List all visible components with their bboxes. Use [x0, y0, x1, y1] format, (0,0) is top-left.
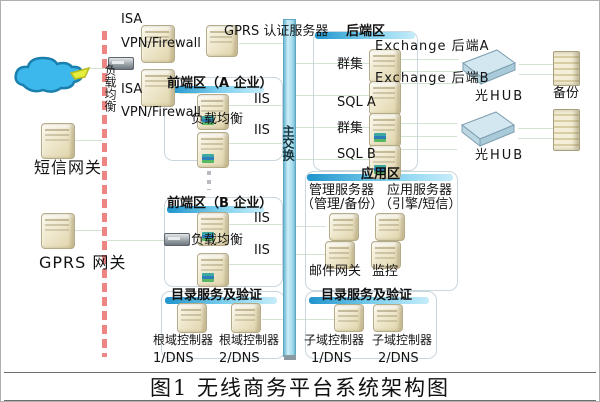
connector-line	[519, 74, 554, 75]
load-balance-vertical-label: 负载均衡	[102, 64, 119, 112]
hub1-label: 光HUB	[475, 90, 524, 104]
sms-gateway-label: 短信网关	[34, 159, 102, 177]
sub-dns2-label: 2/DNS	[378, 352, 419, 366]
root-dns2-label: 2/DNS	[219, 352, 260, 366]
exchange-b-label: Exchange 后端B	[375, 72, 490, 86]
sql-b-label: SQL B	[337, 148, 376, 162]
iis-server-b2-icon	[197, 253, 229, 287]
main-switch-bar	[283, 19, 296, 357]
backup-server1-icon	[553, 51, 580, 86]
frontend-b-lb-label: 负载均衡	[191, 234, 243, 248]
main-switch-label: 主交换	[284, 125, 297, 161]
backup-label: 备份	[553, 87, 579, 101]
sms-gateway-icon	[41, 123, 75, 159]
cluster1-label: 群集	[337, 58, 363, 72]
cluster2-label: 群集	[337, 122, 363, 136]
root-dc1-icon	[177, 303, 207, 333]
connector-line	[75, 140, 103, 141]
vpn-firewall-top-label: VPN/Firewall	[121, 37, 201, 51]
zone-title-application: 应用区	[361, 163, 400, 182]
backup-server2-icon	[553, 109, 580, 151]
gprs-gateway-label: GPRS 网关	[39, 254, 126, 272]
connector-line	[519, 64, 554, 65]
architecture-diagram: 负载均衡 ISA VPN/Firewall ISA VPN/Firewall G…	[0, 0, 600, 402]
load-balancer-device-b-icon	[164, 233, 190, 246]
vpn-firewall-bottom-label: VPN/Firewall	[121, 106, 201, 120]
sub-dc1-icon	[334, 304, 364, 332]
iis-a1-label: IIS	[254, 93, 270, 107]
sub-dns1-label: 1/DNS	[311, 352, 352, 366]
optical-hub2-icon	[456, 109, 520, 149]
figure-caption-box: 图1 无线商务平台系统架构图	[4, 372, 596, 401]
zone-title-frontend-a: 前端区（A 企业）	[167, 72, 273, 91]
zone-title-directory-sub: 目录服务及验证	[321, 284, 412, 303]
iis-a2-label: IIS	[254, 124, 270, 138]
exchange-a-label: Exchange 后端A	[375, 40, 490, 54]
gprs-gateway-icon	[41, 213, 75, 249]
connector-line	[107, 240, 165, 241]
connector-line	[239, 43, 284, 44]
iis-b1-label: IIS	[254, 212, 270, 226]
internet-cloud-icon	[9, 49, 93, 99]
mgmt-server-icon	[329, 213, 359, 241]
gprs-auth-server-label: GPRS 认证服务器	[224, 25, 328, 39]
zone-title-backend: 后端区	[346, 20, 385, 39]
iis-b2-label: IIS	[254, 244, 270, 258]
root-dns1-label: 1/DNS	[153, 352, 194, 366]
main-switch-bar-cap	[284, 355, 296, 360]
isa-top-label: ISA	[121, 13, 142, 27]
zone-title-frontend-b: 前端区（B 企业）	[167, 192, 272, 211]
connector-line	[518, 138, 554, 139]
connector-line	[518, 128, 554, 129]
root-dc1-label: 根域控制器	[153, 334, 213, 347]
frontend-a-lb-label: 负载均衡	[191, 113, 243, 127]
sql-a-server-icon	[369, 113, 401, 147]
sub-dc1-label: 子域控制器	[304, 334, 364, 347]
app-sub-label: （引擎/短信）	[379, 198, 461, 212]
zone-title-directory-root: 目录服务及验证	[171, 284, 262, 303]
root-dc2-label: 根域控制器	[219, 334, 279, 347]
monitor-label: 监控	[372, 265, 398, 279]
figure-caption: 图1 无线商务平台系统架构图	[150, 372, 450, 402]
connector-line	[75, 230, 103, 231]
iis-server-a2-icon	[197, 132, 229, 168]
hub2-label: 光HUB	[475, 149, 524, 163]
sub-dc2-label: 子域控制器	[372, 334, 432, 347]
sub-dc2-icon	[373, 304, 403, 332]
mgmt-sub-label: （管理/备份）	[301, 198, 383, 212]
mail-gateway-label: 邮件网关	[309, 265, 361, 279]
root-dc2-icon	[231, 303, 261, 333]
isa-bottom-label: ISA	[121, 83, 142, 97]
app-server-icon	[375, 213, 405, 241]
sql-a-label: SQL A	[337, 96, 376, 110]
